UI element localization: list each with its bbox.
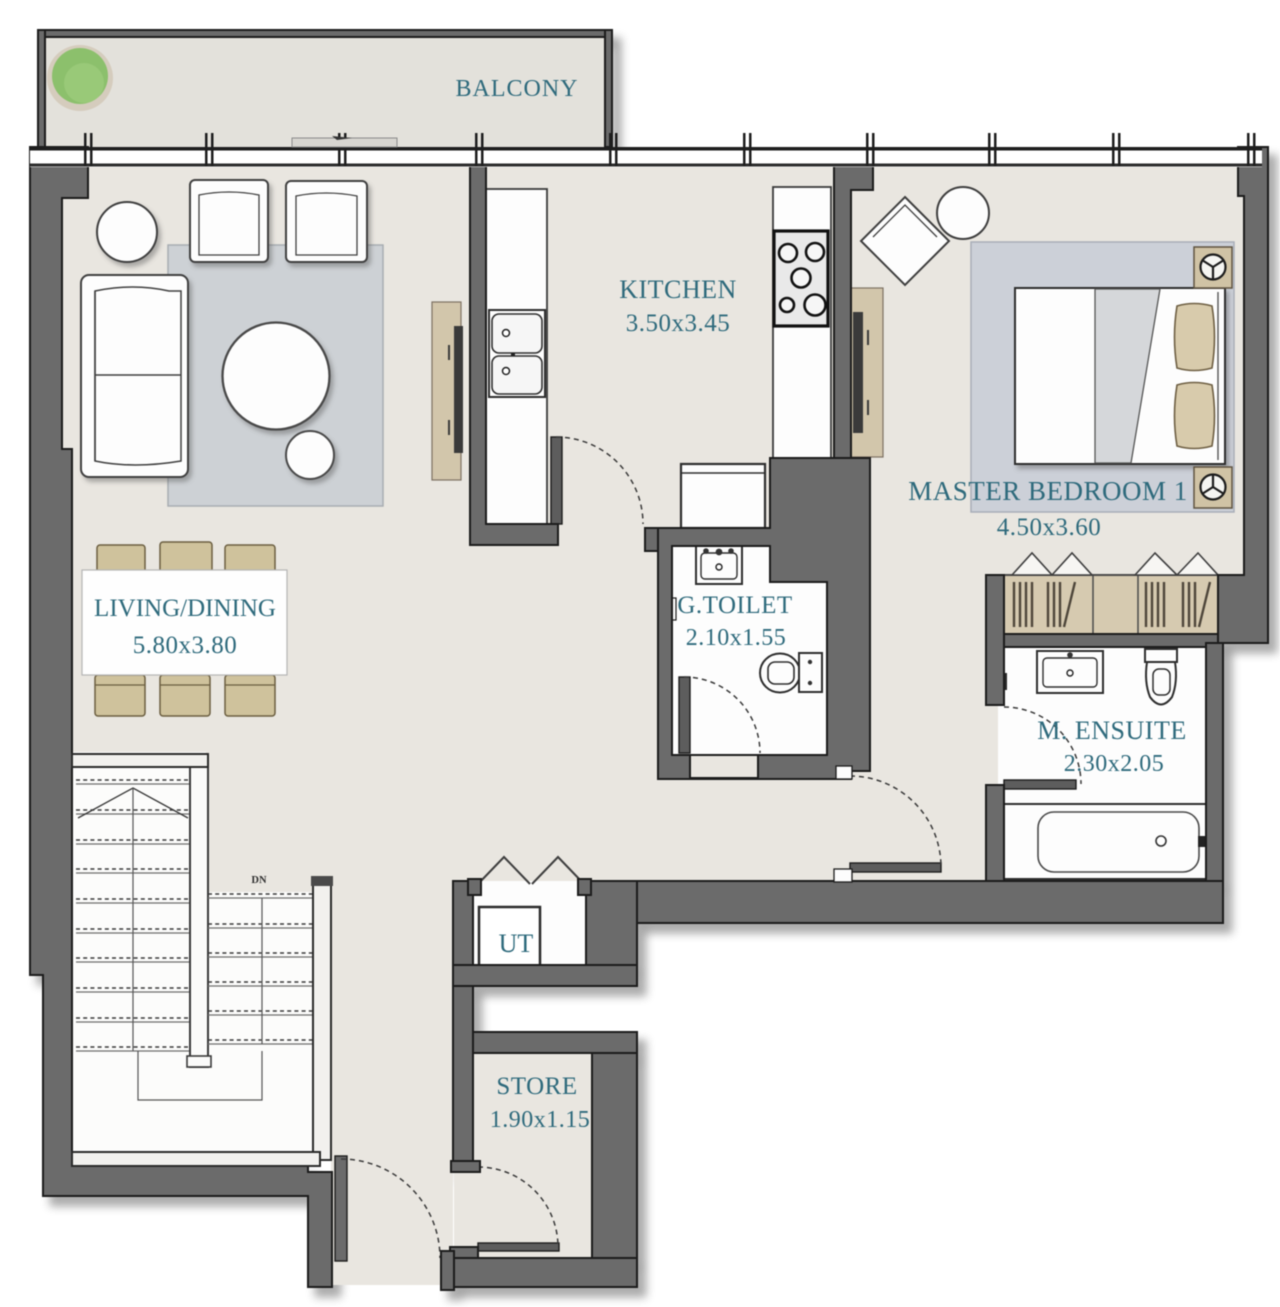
svg-text:1.90x1.15: 1.90x1.15 [490, 1107, 591, 1133]
svg-text:MASTER BEDROOM 1: MASTER BEDROOM 1 [908, 476, 1188, 506]
svg-text:5.80x3.80: 5.80x3.80 [133, 632, 238, 659]
svg-text:G.TOILET: G.TOILET [677, 592, 792, 619]
svg-text:BALCONY: BALCONY [455, 76, 578, 102]
svg-text:2.10x1.55: 2.10x1.55 [686, 625, 787, 651]
svg-text:LIVING/DINING: LIVING/DINING [94, 595, 276, 622]
svg-text:KITCHEN: KITCHEN [619, 275, 737, 304]
svg-text:UT: UT [499, 929, 534, 958]
svg-text:2.30x2.05: 2.30x2.05 [1064, 751, 1165, 777]
svg-text:STORE: STORE [496, 1073, 577, 1100]
svg-text:3.50x3.45: 3.50x3.45 [626, 310, 731, 337]
svg-text:DN: DN [251, 875, 267, 886]
svg-text:M. ENSUITE: M. ENSUITE [1037, 716, 1186, 745]
svg-text:4.50x3.60: 4.50x3.60 [997, 514, 1102, 541]
